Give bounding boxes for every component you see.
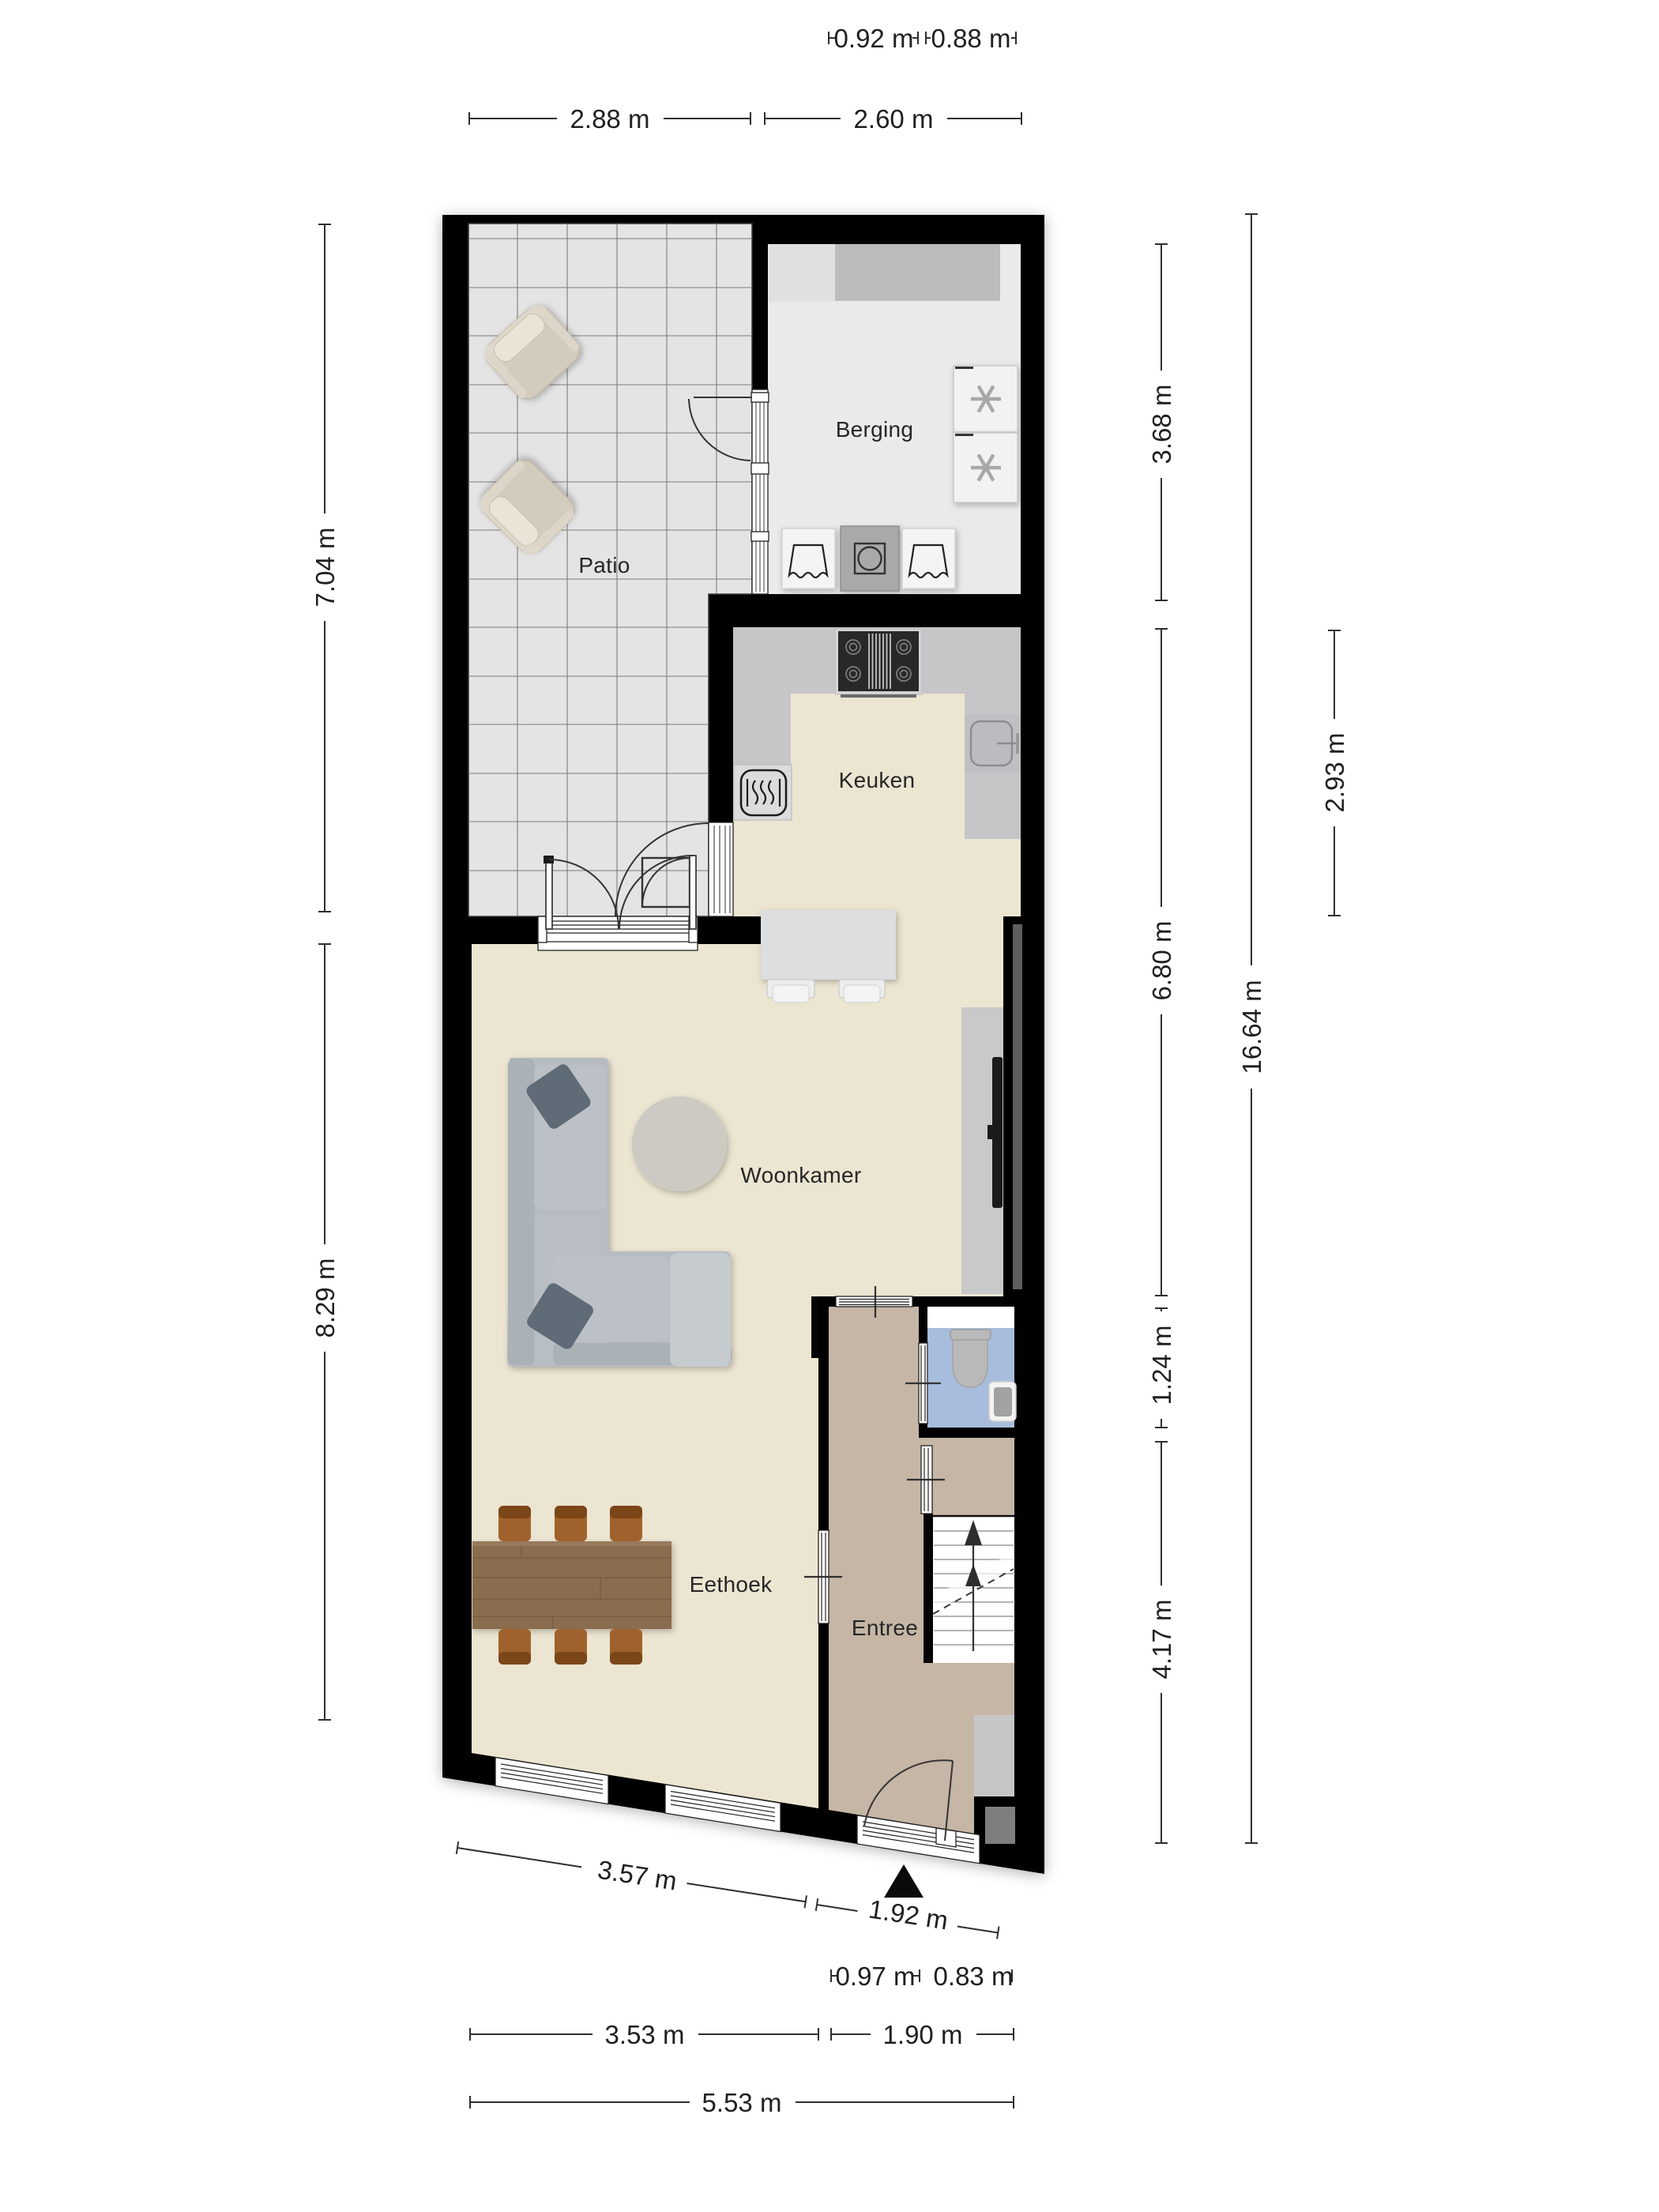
svg-text:0.88 m: 0.88 m [931, 24, 1011, 53]
svg-text:Woonkamer: Woonkamer [740, 1163, 861, 1187]
svg-text:Patio: Patio [578, 553, 630, 577]
svg-text:3.53 m: 3.53 m [605, 2020, 685, 2049]
svg-text:4.17 m: 4.17 m [1147, 1600, 1176, 1680]
svg-text:Entree: Entree [852, 1616, 918, 1640]
svg-text:2.93 m: 2.93 m [1320, 733, 1349, 813]
svg-text:7.04 m: 7.04 m [310, 528, 340, 608]
svg-text:6.80 m: 6.80 m [1147, 921, 1176, 1001]
svg-text:8.29 m: 8.29 m [310, 1258, 340, 1338]
svg-text:0.97 m: 0.97 m [836, 1962, 916, 1991]
svg-text:Eethoek: Eethoek [690, 1572, 773, 1597]
svg-text:Keuken: Keuken [839, 768, 916, 792]
svg-text:16.64 m: 16.64 m [1237, 980, 1266, 1074]
svg-text:3.68 m: 3.68 m [1147, 385, 1176, 465]
svg-text:2.88 m: 2.88 m [570, 104, 650, 134]
svg-text:0.92 m: 0.92 m [834, 24, 914, 53]
svg-text:Berging: Berging [836, 417, 914, 442]
svg-text:0.83 m: 0.83 m [934, 1962, 1014, 1991]
svg-text:1.24 m: 1.24 m [1147, 1326, 1176, 1405]
svg-text:1.90 m: 1.90 m [883, 2020, 963, 2049]
svg-text:5.53 m: 5.53 m [702, 2088, 782, 2117]
svg-text:2.60 m: 2.60 m [854, 104, 934, 134]
